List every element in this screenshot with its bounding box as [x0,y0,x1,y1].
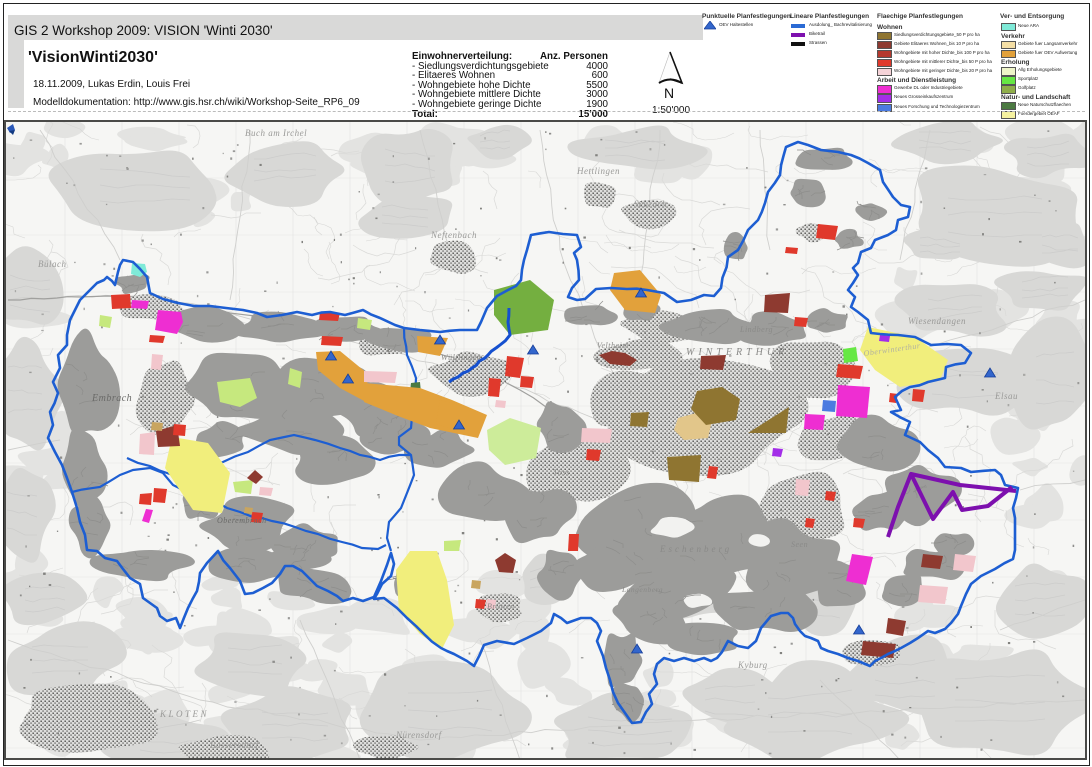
svg-text:Seen: Seen [791,540,808,549]
svg-text:Embrach: Embrach [91,393,132,404]
svg-text:Hettlingen: Hettlingen [576,166,620,176]
svg-text:KLOTEN: KLOTEN [159,709,209,719]
svg-text:Brütten: Brütten [487,602,515,611]
svg-text:Bülach: Bülach [38,259,67,269]
svg-text:Wiesendangen: Wiesendangen [908,316,966,326]
svg-text:Neftenbach: Neftenbach [430,230,477,240]
svg-text:Elsau: Elsau [994,391,1018,401]
svg-text:N: N [664,85,674,101]
svg-text:Bassersdorf: Bassersdorf [210,740,260,750]
svg-text:Eschenberg: Eschenberg [659,544,732,554]
svg-text:WINTERTHUR: WINTERTHUR [686,347,788,358]
svg-text:Töss: Töss [553,468,570,477]
svg-text:Buch am Irchel: Buch am Irchel [245,128,307,138]
svg-text:Wülflingen: Wülflingen [441,353,481,362]
svg-text:Seuzach: Seuzach [634,199,667,209]
svg-text:Nürensdorf: Nürensdorf [395,730,443,740]
svg-text:Veltheim: Veltheim [597,341,629,350]
svg-text:Kyburg: Kyburg [737,660,768,670]
svg-text:Langenberg: Langenberg [621,585,663,594]
svg-text:Lindberg: Lindberg [739,325,773,334]
svg-text:Oberembrach: Oberembrach [217,516,267,525]
